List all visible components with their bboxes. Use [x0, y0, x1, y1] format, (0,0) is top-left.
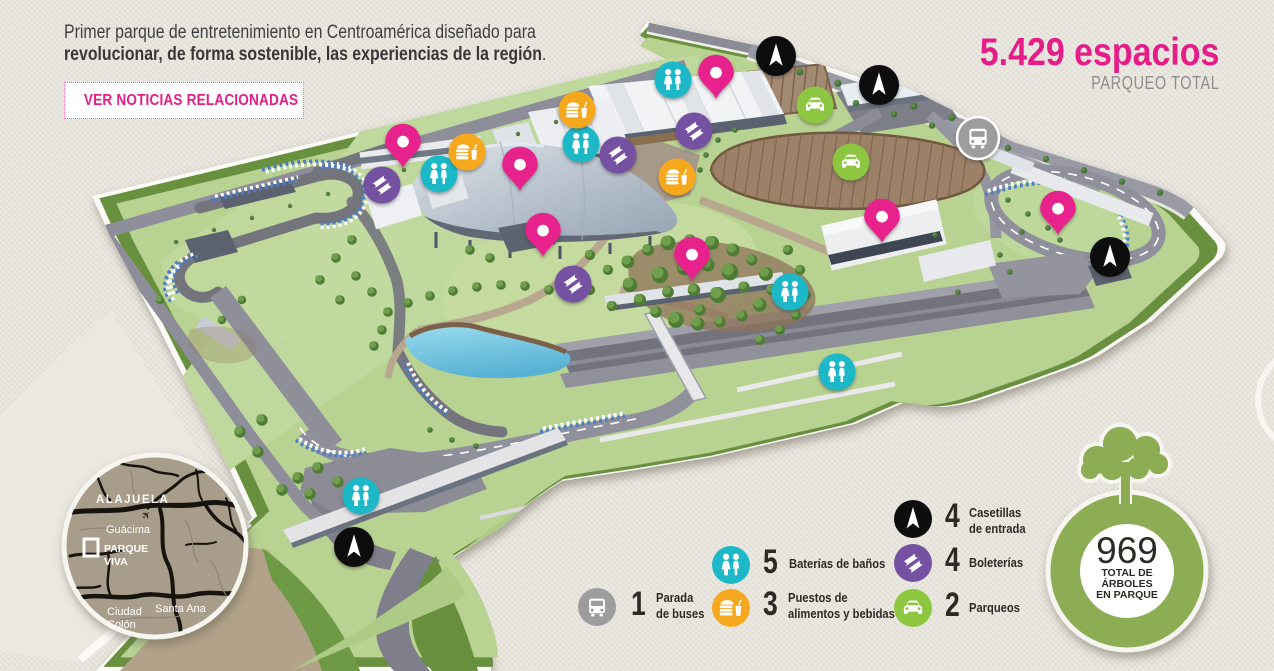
svg-text:Guácima: Guácima: [106, 524, 151, 536]
svg-text:VIVA: VIVA: [104, 556, 128, 568]
svg-text:969: 969: [1096, 530, 1158, 571]
svg-text:Ciudad: Ciudad: [107, 606, 142, 618]
svg-text:Colón: Colón: [107, 619, 136, 631]
svg-text:PARQUE: PARQUE: [104, 543, 148, 555]
svg-text:ALAJUELA: ALAJUELA: [96, 494, 169, 506]
svg-text:Santa Ana: Santa Ana: [155, 603, 207, 615]
svg-text:EN PARQUE: EN PARQUE: [1096, 589, 1158, 601]
